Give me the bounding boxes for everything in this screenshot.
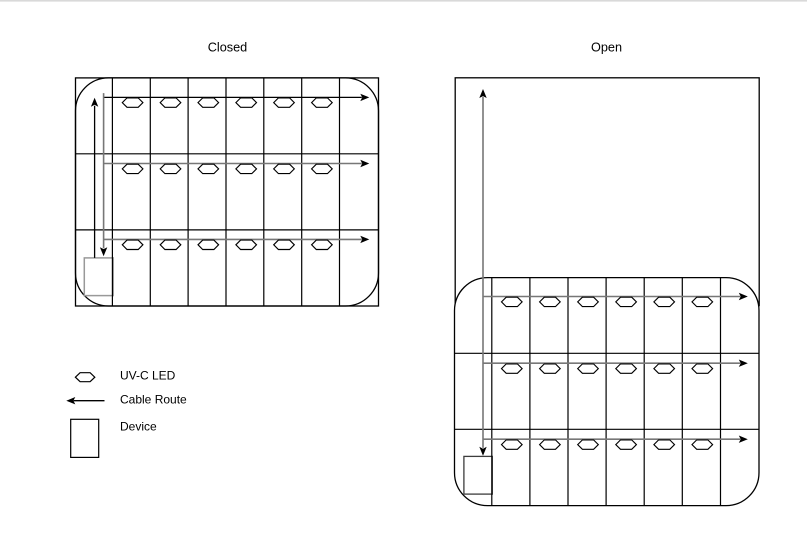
svg-text:Open: Open [591,40,622,54]
svg-text:Closed: Closed [208,40,248,54]
svg-text:Device: Device [120,420,157,434]
svg-text:UV-C LED: UV-C LED [120,368,176,382]
svg-text:Cable Route: Cable Route [120,392,187,406]
